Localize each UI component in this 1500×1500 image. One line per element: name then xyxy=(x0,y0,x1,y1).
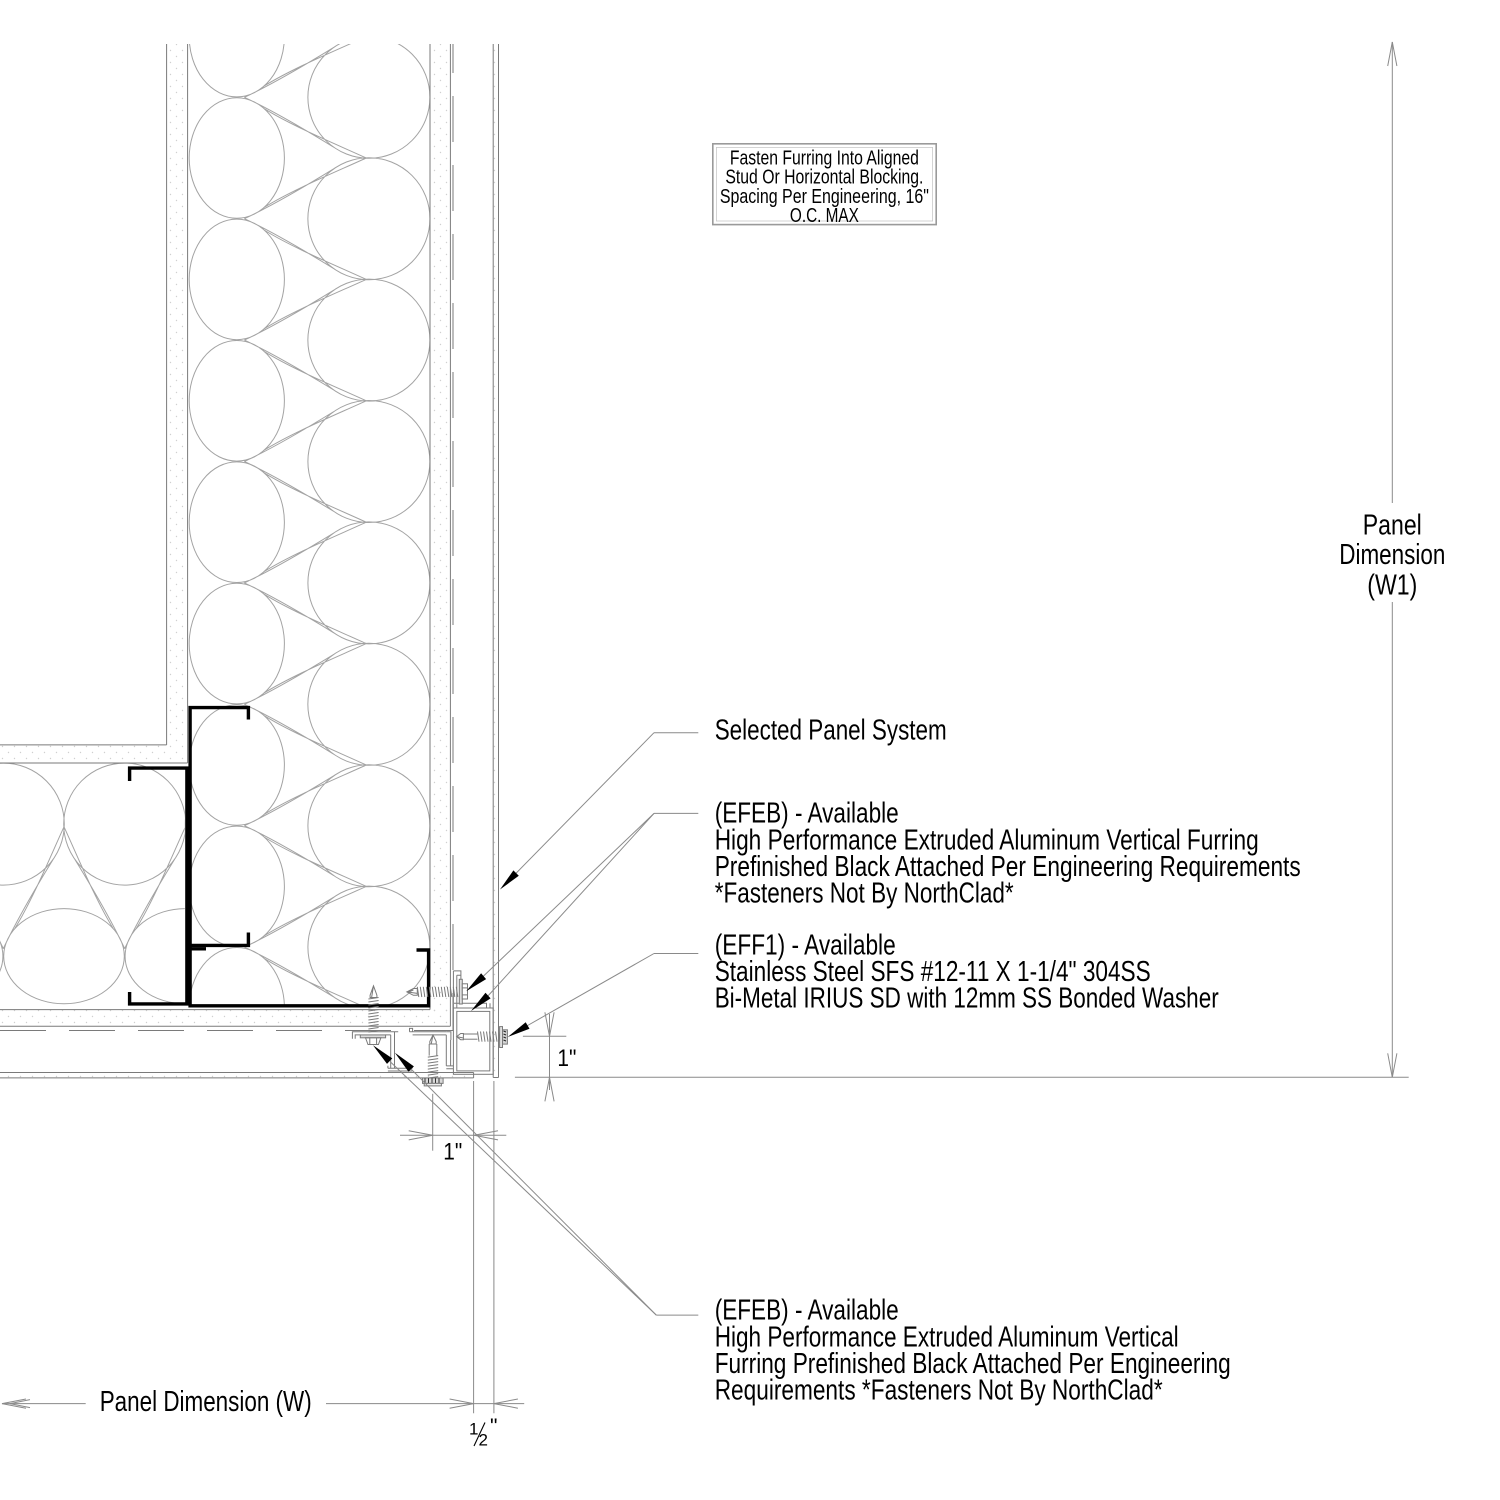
svg-text:Selected Panel System: Selected Panel System xyxy=(715,715,947,747)
svg-text:": " xyxy=(490,1415,497,1438)
svg-text:2: 2 xyxy=(479,1431,488,1450)
svg-text:Panel: Panel xyxy=(1363,510,1422,542)
svg-text:Panel Dimension (W): Panel Dimension (W) xyxy=(100,1386,312,1418)
svg-text:*Fasteners Not By NorthClad*: *Fasteners Not By NorthClad* xyxy=(715,878,1014,910)
svg-text:Bi-Metal IRIUS SD with 12mm SS: Bi-Metal IRIUS SD with 12mm SS Bonded Wa… xyxy=(715,983,1219,1015)
svg-text:1: 1 xyxy=(469,1420,478,1439)
svg-text:Dimension: Dimension xyxy=(1339,539,1445,571)
svg-text:1": 1" xyxy=(557,1045,576,1072)
svg-text:O.C. MAX: O.C. MAX xyxy=(790,205,859,227)
svg-text:(W1): (W1) xyxy=(1367,570,1417,602)
svg-text:Requirements *Fasteners Not By: Requirements *Fasteners Not By NorthClad… xyxy=(715,1375,1163,1407)
svg-text:1": 1" xyxy=(443,1139,462,1166)
